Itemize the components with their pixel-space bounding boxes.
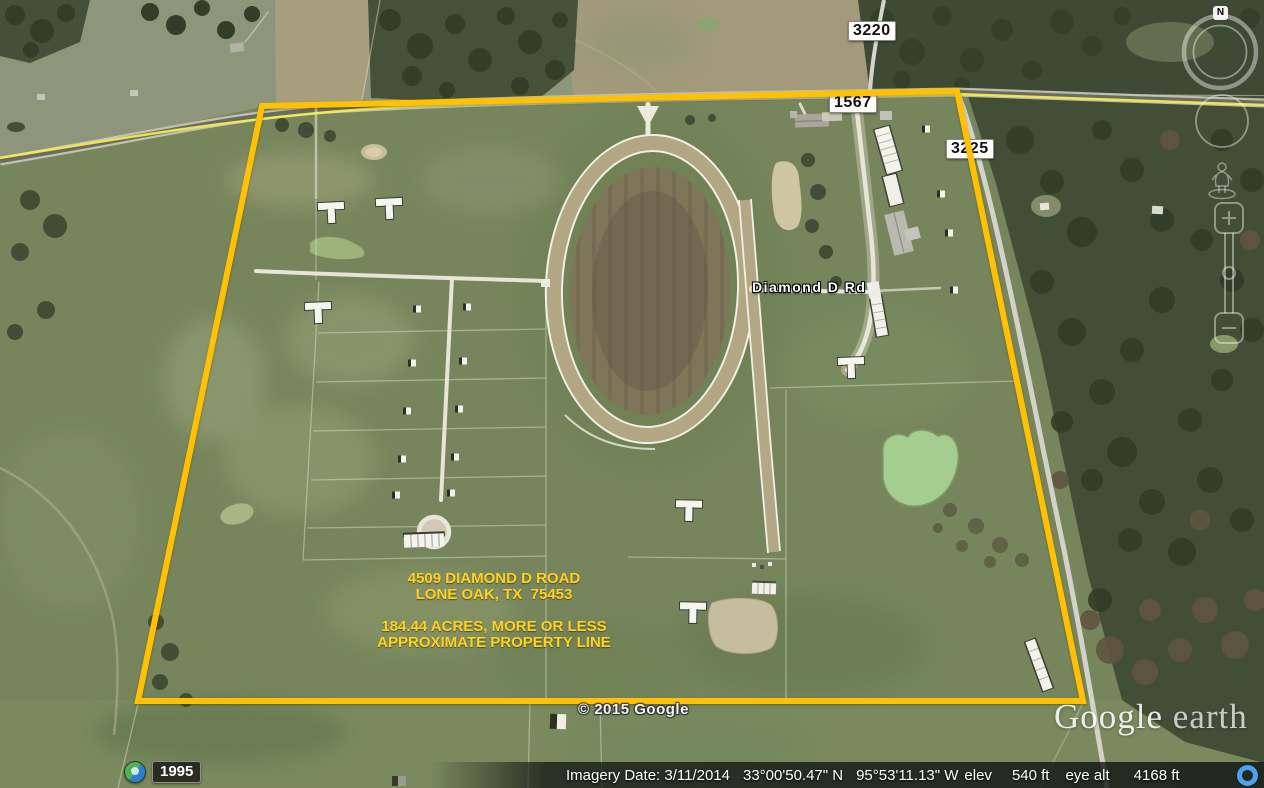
elev-label: elev (964, 767, 992, 784)
zoom-in-icon (1222, 211, 1236, 225)
imagery-date: Imagery Date: 3/11/2014 (566, 767, 730, 784)
annotation-acreage-line1: 184.44 ACRES, MORE OR LESS (356, 619, 632, 635)
elevation-readout: 540 ft (1012, 767, 1050, 784)
google-earth-viewport: 3220 1567 3225 Diamond D Rd 4509 DIAMOND… (0, 0, 1264, 788)
zoom-slider[interactable] (1215, 203, 1243, 343)
property-annotation: 4509 DIAMOND D ROAD LONE OAK, TX 75453 1… (356, 571, 632, 651)
annotation-address-line1: 4509 DIAMOND D ROAD (356, 571, 632, 587)
longitude-readout: 95°53'11.13" W (856, 767, 958, 784)
watermark-earth: earth (1163, 697, 1248, 736)
annotation-address-line2: LONE OAK, TX 75453 (356, 587, 632, 603)
pan-ring[interactable] (1196, 95, 1248, 147)
navigation-controls[interactable] (1180, 0, 1264, 360)
property-boundary-overlay (0, 0, 1264, 788)
copyright-text: © 2015 Google (578, 701, 689, 718)
status-bar: Imagery Date: 3/11/2014 33°00'50.47" N 9… (0, 762, 1264, 788)
eye-altitude-readout: 4168 ft (1134, 767, 1180, 784)
latitude-readout: 33°00'50.47" N (743, 767, 843, 784)
watermark-google: Google (1054, 697, 1163, 736)
compass-north-label[interactable]: N (1213, 6, 1228, 20)
google-earth-watermark: Google earth (1054, 697, 1248, 737)
compass-ring[interactable] (1184, 16, 1256, 88)
annotation-acreage-line2: APPROXIMATE PROPERTY LINE (356, 635, 632, 651)
eye-alt-label: eye alt (1065, 767, 1109, 784)
pegman-icon[interactable] (1209, 163, 1235, 199)
streaming-indicator-icon (1237, 765, 1258, 786)
street-label-diamond-d-rd: Diamond D Rd (752, 279, 866, 295)
